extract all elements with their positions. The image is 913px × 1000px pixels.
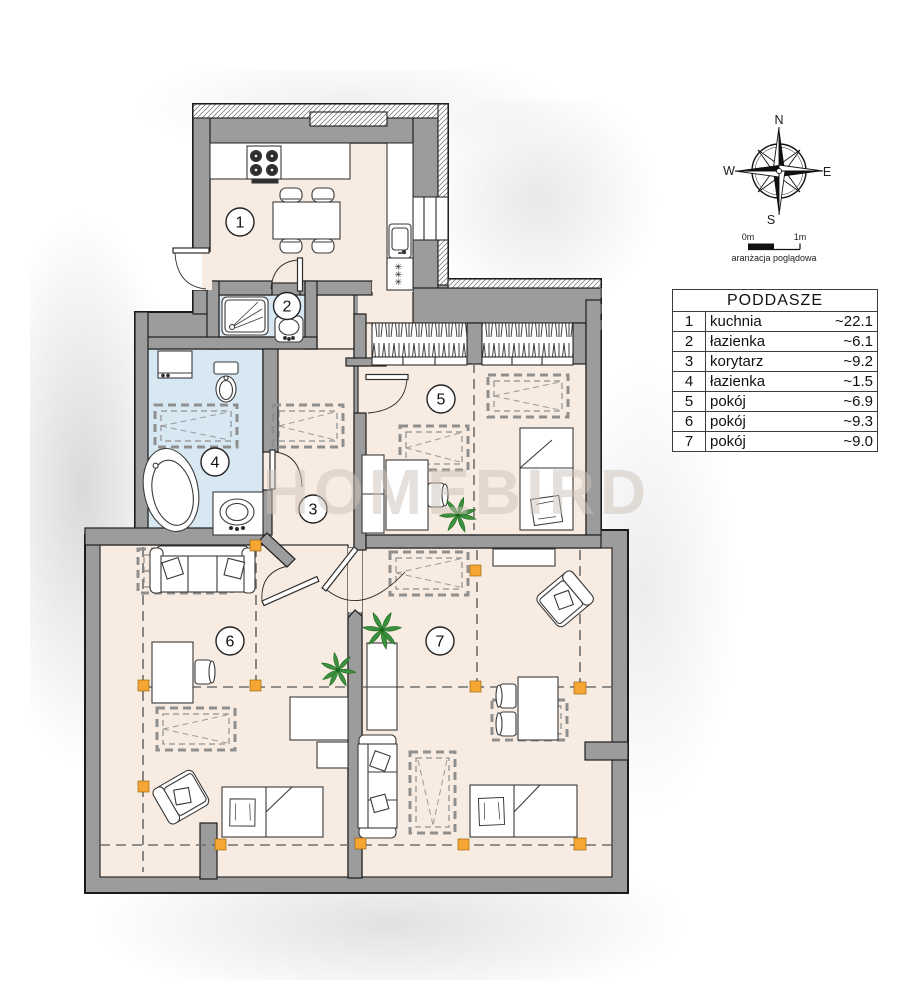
legend-room-area: ~1.5 (815, 372, 878, 392)
wall-eaves-apron (413, 288, 601, 323)
svg-text:1: 1 (236, 215, 245, 232)
desk (152, 642, 193, 703)
vanity-sink-icon (213, 492, 263, 535)
scale-caption: aranżacja poglądowa (731, 253, 816, 263)
compass-label-w: W (723, 164, 735, 178)
legend-room-number: 2 (673, 332, 706, 352)
svg-text:✳✳✳: ✳✳✳ (393, 263, 403, 286)
scale-zero-label: 0m (742, 232, 755, 242)
sofa (358, 735, 397, 838)
legend-room-area: ~9.0 (815, 432, 878, 452)
svg-text:2: 2 (283, 299, 292, 316)
bed (222, 787, 323, 837)
legend-room-number: 1 (673, 312, 706, 332)
scale-bar: 0m 1m aranżacja poglądowa (731, 232, 816, 263)
legend-room-number: 5 (673, 392, 706, 412)
desk-chair (496, 684, 516, 708)
shower-icon (222, 297, 268, 335)
wall-kitchen-left (193, 114, 210, 252)
legend-row: 2 łazienka ~6.1 (673, 332, 878, 352)
room-badge-1: 1 (226, 208, 254, 236)
dining-chair (280, 188, 302, 202)
watermark: HOMEBIRD (263, 456, 651, 528)
wall-bath4-right (263, 349, 278, 452)
room-badge-4: 4 (201, 448, 229, 476)
compass-label-s: S (767, 213, 775, 227)
legend-title: PODDASZE (673, 290, 878, 312)
svg-text:7: 7 (436, 634, 445, 651)
dining-chair (280, 239, 302, 253)
desk-chair (496, 712, 516, 736)
legend-room-number: 3 (673, 352, 706, 372)
legend-room-area: ~9.3 (815, 412, 878, 432)
room-badge-5: 5 (427, 385, 455, 413)
legend-room-name: kuchnia (706, 312, 816, 332)
wall-stub-bottom (200, 823, 217, 879)
svg-text:4: 4 (211, 455, 220, 472)
legend-row: 3 korytarz ~9.2 (673, 352, 878, 372)
shelf (290, 697, 348, 740)
legend-row: 1 kuchnia ~22.1 (673, 312, 878, 332)
legend-room-name: pokój (706, 392, 816, 412)
scale-one-label: 1m (794, 232, 807, 242)
floor-plan-page: ✳✳✳ (0, 0, 913, 1000)
stove-icon (247, 146, 281, 183)
bookshelf (367, 643, 397, 730)
wall-wardrobe-right (573, 323, 586, 364)
legend-row: 6 pokój ~9.3 (673, 412, 878, 432)
legend-room-name: korytarz (706, 352, 816, 372)
dining-chair (312, 239, 334, 253)
legend-room-area: ~6.1 (815, 332, 878, 352)
desk (518, 677, 558, 740)
compass-label-n: N (774, 113, 783, 127)
compass-rose: N E S W (723, 113, 831, 227)
shelf (317, 742, 348, 768)
legend-room-area: ~6.9 (815, 392, 878, 412)
svg-text:6: 6 (226, 634, 235, 651)
sofa (150, 546, 255, 593)
legend-room-name: pokój (706, 412, 816, 432)
room-badge-6: 6 (216, 627, 244, 655)
wall-wardrobe-stub (467, 323, 482, 364)
wall-stub-right (585, 742, 628, 760)
compass-label-e: E (823, 165, 831, 179)
legend-room-number: 6 (673, 412, 706, 432)
washing-machine-icon (158, 351, 192, 378)
wall-room5-room7 (366, 535, 601, 548)
bed (470, 785, 577, 837)
room-badge-2: 2 (274, 293, 301, 320)
legend-room-area: ~22.1 (815, 312, 878, 332)
legend-room-number: 4 (673, 372, 706, 392)
svg-text:5: 5 (437, 392, 446, 409)
dining-chair (312, 188, 334, 202)
dining-table (273, 202, 340, 239)
corridor-nook-floor (317, 295, 354, 349)
toilet-icon (214, 362, 238, 402)
legend-room-name: łazienka (706, 332, 816, 352)
legend-room-name: pokój (706, 432, 816, 452)
legend-room-number: 7 (673, 432, 706, 452)
legend-room-name: łazienka (706, 372, 816, 392)
legend-row: 5 pokój ~6.9 (673, 392, 878, 412)
legend-room-area: ~9.2 (815, 352, 878, 372)
floor-plan-svg: ✳✳✳ (0, 0, 913, 1000)
legend-row: 7 pokój ~9.0 (673, 432, 878, 452)
shelf (493, 549, 555, 566)
scale-bar-segment (748, 244, 774, 250)
legend-table: PODDASZE 1 kuchnia ~22.1 2 łazienka ~6.1… (672, 289, 878, 452)
kitchen-sink-icon (389, 224, 411, 258)
legend-row: 4 łazienka ~1.5 (673, 372, 878, 392)
desk-chair (195, 660, 215, 684)
fridge-icon: ✳✳✳ (387, 258, 413, 290)
kitchen-window (413, 197, 448, 240)
room-badge-7: 7 (426, 627, 454, 655)
